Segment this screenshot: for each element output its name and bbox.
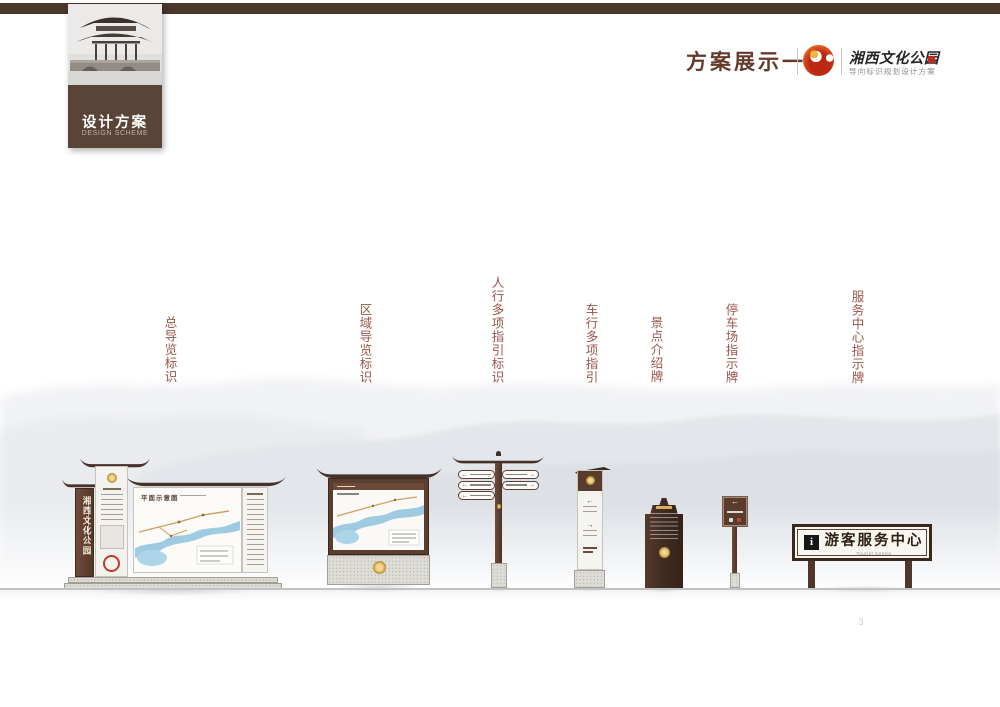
design-scheme-tab: 设计方案 DESIGN SCHEME [68, 4, 162, 148]
arrow-right-icon: → [529, 482, 535, 488]
map-header-bar [337, 486, 355, 488]
plaque-leg [905, 561, 912, 588]
arrow-left-icon: ← [723, 498, 747, 506]
plate-text-bar [506, 484, 527, 486]
arrow-left-icon: ← [578, 497, 602, 505]
sign-pole [732, 527, 737, 573]
region-map-illustration [333, 490, 424, 550]
plaque-leg [808, 561, 815, 588]
park-badge-icon [107, 473, 117, 483]
main-guide-sign: 湘西文化公园 平面示意图 [60, 455, 288, 595]
region-guide-sign [316, 455, 442, 588]
plaque-title: 游客服务中心 [819, 529, 929, 550]
map-title: 平面示意图 [141, 492, 179, 502]
park-badge-icon [373, 561, 386, 574]
header-divider [797, 48, 798, 75]
park-name-plank: 湘西文化公园 [75, 488, 94, 577]
parking-plate: ← [722, 496, 748, 527]
facility-icon [737, 518, 741, 522]
destination-text-bars [583, 530, 597, 539]
park-badge-icon [586, 476, 595, 485]
facility-icon [729, 518, 733, 522]
service-center-sign: i 游客服务中心 Tourist Centre [790, 522, 936, 588]
sign-pillar: ← → [577, 470, 603, 570]
pillar-footer-bar [583, 551, 593, 553]
seal-icon [928, 56, 935, 63]
board-title-bar [656, 506, 672, 509]
directory-title-bar [247, 493, 263, 495]
tab-title: 设计方案 [68, 111, 162, 132]
plank-subtext-line [88, 501, 89, 541]
tab-subtitle: DESIGN SCHEME [68, 130, 162, 137]
vehicle-direction-sign: ← → [574, 464, 612, 588]
direction-plate: ← [458, 481, 495, 490]
pavilion-photo [68, 4, 162, 85]
arrow-right-icon: → [578, 521, 602, 529]
direction-plate: ← [458, 491, 495, 500]
section-title: 方案展示一 [686, 46, 806, 76]
brand-name: 湘西文化公园 [849, 47, 929, 68]
sign-label-vehicle-directions: 车行多项指引 [584, 303, 597, 384]
plate-text-bar [470, 484, 491, 486]
stone-base [574, 570, 605, 588]
brand-subtitle: 导向标识规划设计方案 [849, 66, 936, 77]
sign-label-region-guide: 区域导览标识 [358, 303, 371, 384]
sign-label-main-guide: 总导览标识 [163, 316, 176, 384]
column-inset-panel [100, 525, 124, 549]
park-name-vertical-text: 湘西文化公园 [81, 496, 93, 556]
presentation-slide: 方案展示一 湘西文化公园 导向标识规划设计方案 [0, 0, 1000, 707]
ground-shadow [0, 590, 1000, 602]
sun-swirl-logo-icon [803, 45, 834, 76]
stone-footing [730, 573, 740, 588]
pillar-footer-bar [583, 547, 597, 549]
red-ring-mark [103, 555, 120, 572]
pedestrian-fingerpost-sign: ← ← ← → → [450, 448, 546, 590]
plate-text-bar [506, 474, 527, 476]
column-text-block [101, 494, 123, 522]
column-title-bar [103, 488, 121, 490]
arrow-left-icon: ← [462, 472, 468, 478]
pavilion-illustration [68, 4, 162, 85]
map-header-band [333, 483, 424, 490]
arrow-left-icon: ← [462, 482, 468, 488]
stone-base [327, 555, 430, 585]
header-divider [841, 48, 842, 75]
arrow-left-icon: ← [462, 493, 468, 499]
pillar-header [578, 471, 602, 491]
roof-icon [126, 475, 286, 487]
arrow-right-icon: → [529, 472, 535, 478]
sign-pole [495, 463, 502, 565]
park-map-illustration [135, 502, 240, 572]
plaque-subtitle: Tourist Centre [819, 551, 929, 556]
destination-text-bars [583, 506, 597, 515]
direction-plate: → [502, 481, 539, 490]
map-frame [328, 478, 429, 555]
service-center-plaque: i 游客服务中心 Tourist Centre [792, 524, 932, 561]
map-subtitle-bar [180, 495, 206, 496]
pole-badge-icon [497, 504, 502, 509]
directory-column [242, 487, 268, 573]
map-panel: 平面示意图 [133, 487, 242, 573]
direction-plate: → [502, 470, 539, 479]
sign-label-pedestrian-fingerpost: 人行多项指引标识 [490, 276, 503, 384]
sign-label-parking: 停车场指示牌 [724, 303, 737, 384]
direction-plate: ← [458, 470, 495, 479]
board-text-block [650, 513, 678, 539]
stone-footing [491, 563, 507, 588]
plate-text-bar [470, 495, 491, 497]
sign-label-attraction-board: 景点介绍牌 [649, 316, 662, 384]
parking-sign: ← [720, 496, 750, 588]
park-badge-icon [659, 547, 670, 558]
plate-text-bar [727, 511, 743, 513]
information-icon: i [804, 535, 819, 550]
page-number: 3 [853, 617, 869, 627]
design-scheme-tab-body: 设计方案 DESIGN SCHEME [68, 85, 162, 148]
directory-text-block [247, 499, 264, 567]
sign-label-service-center: 服务中心指示牌 [850, 290, 863, 385]
intro-column [95, 466, 128, 577]
plate-text-bar [470, 474, 491, 476]
